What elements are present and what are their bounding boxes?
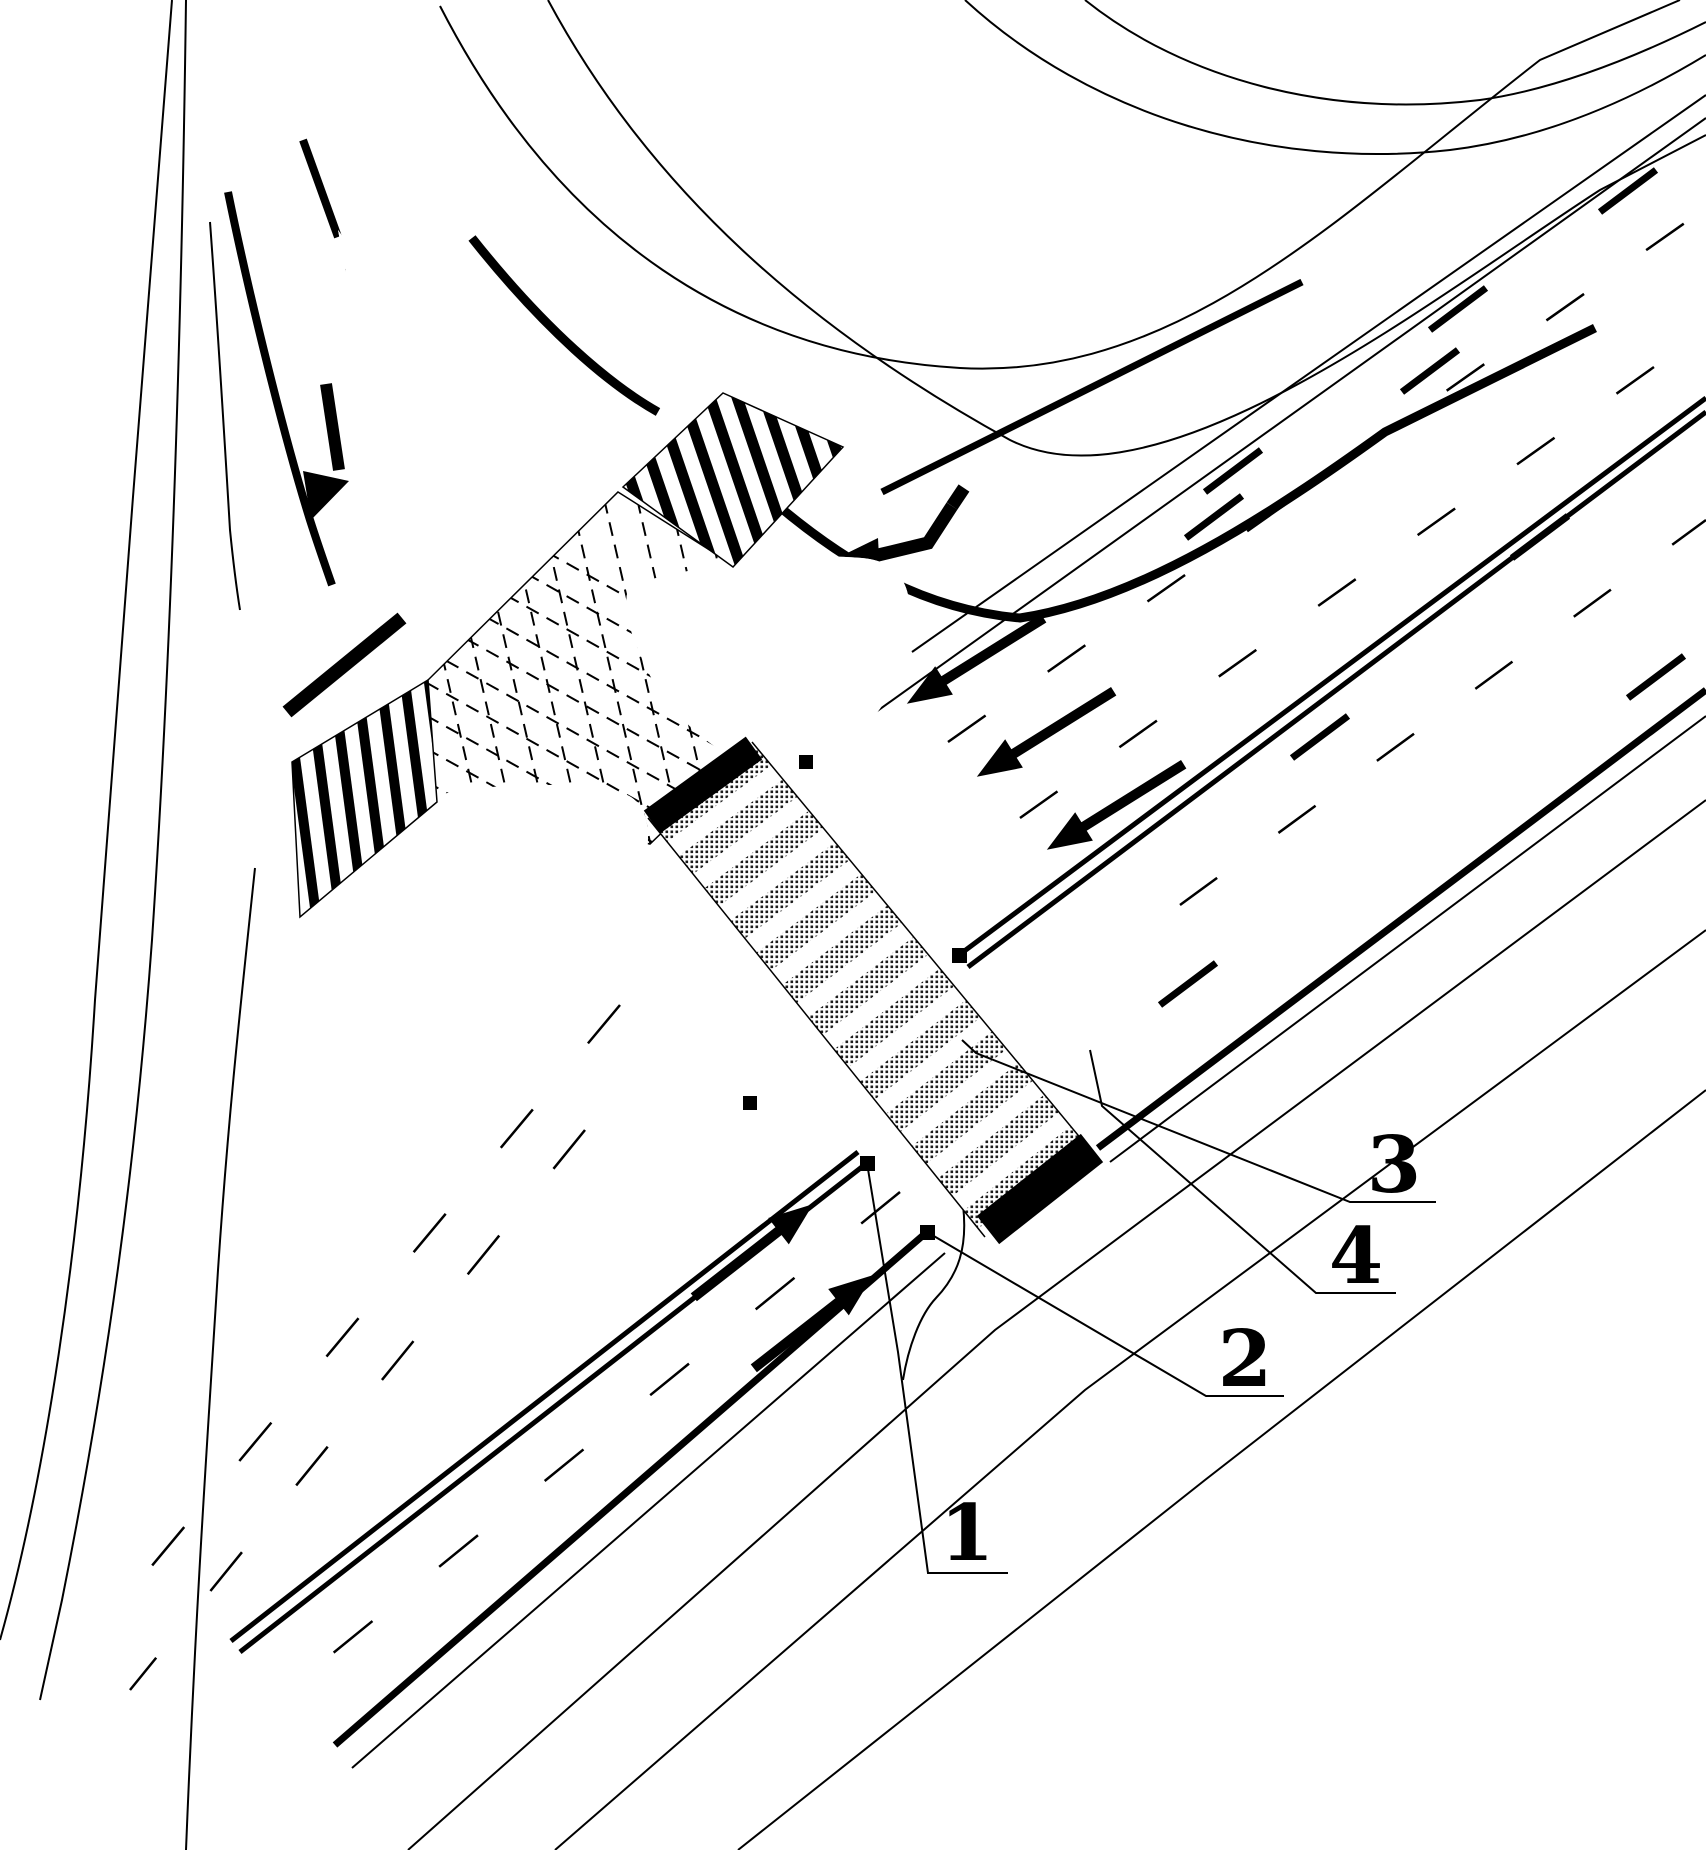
dot-zebra-edge xyxy=(743,1096,757,1110)
dot-centre-line-end-ne xyxy=(952,948,967,963)
callout-label-3: 3 xyxy=(1367,1120,1421,1211)
dot-centre-line-end-sw xyxy=(860,1156,875,1171)
dot-lane-line-end xyxy=(799,755,813,769)
callout-label-2: 2 xyxy=(1218,1314,1272,1405)
callout-label-1: 1 xyxy=(940,1488,994,1579)
figure-canvas: 1 2 3 4 xyxy=(0,0,1706,1850)
dot-edge-line xyxy=(920,1225,935,1240)
intersection-plan-figure: 1 2 3 4 xyxy=(0,0,1706,1850)
callout-label-4: 4 xyxy=(1329,1211,1383,1302)
